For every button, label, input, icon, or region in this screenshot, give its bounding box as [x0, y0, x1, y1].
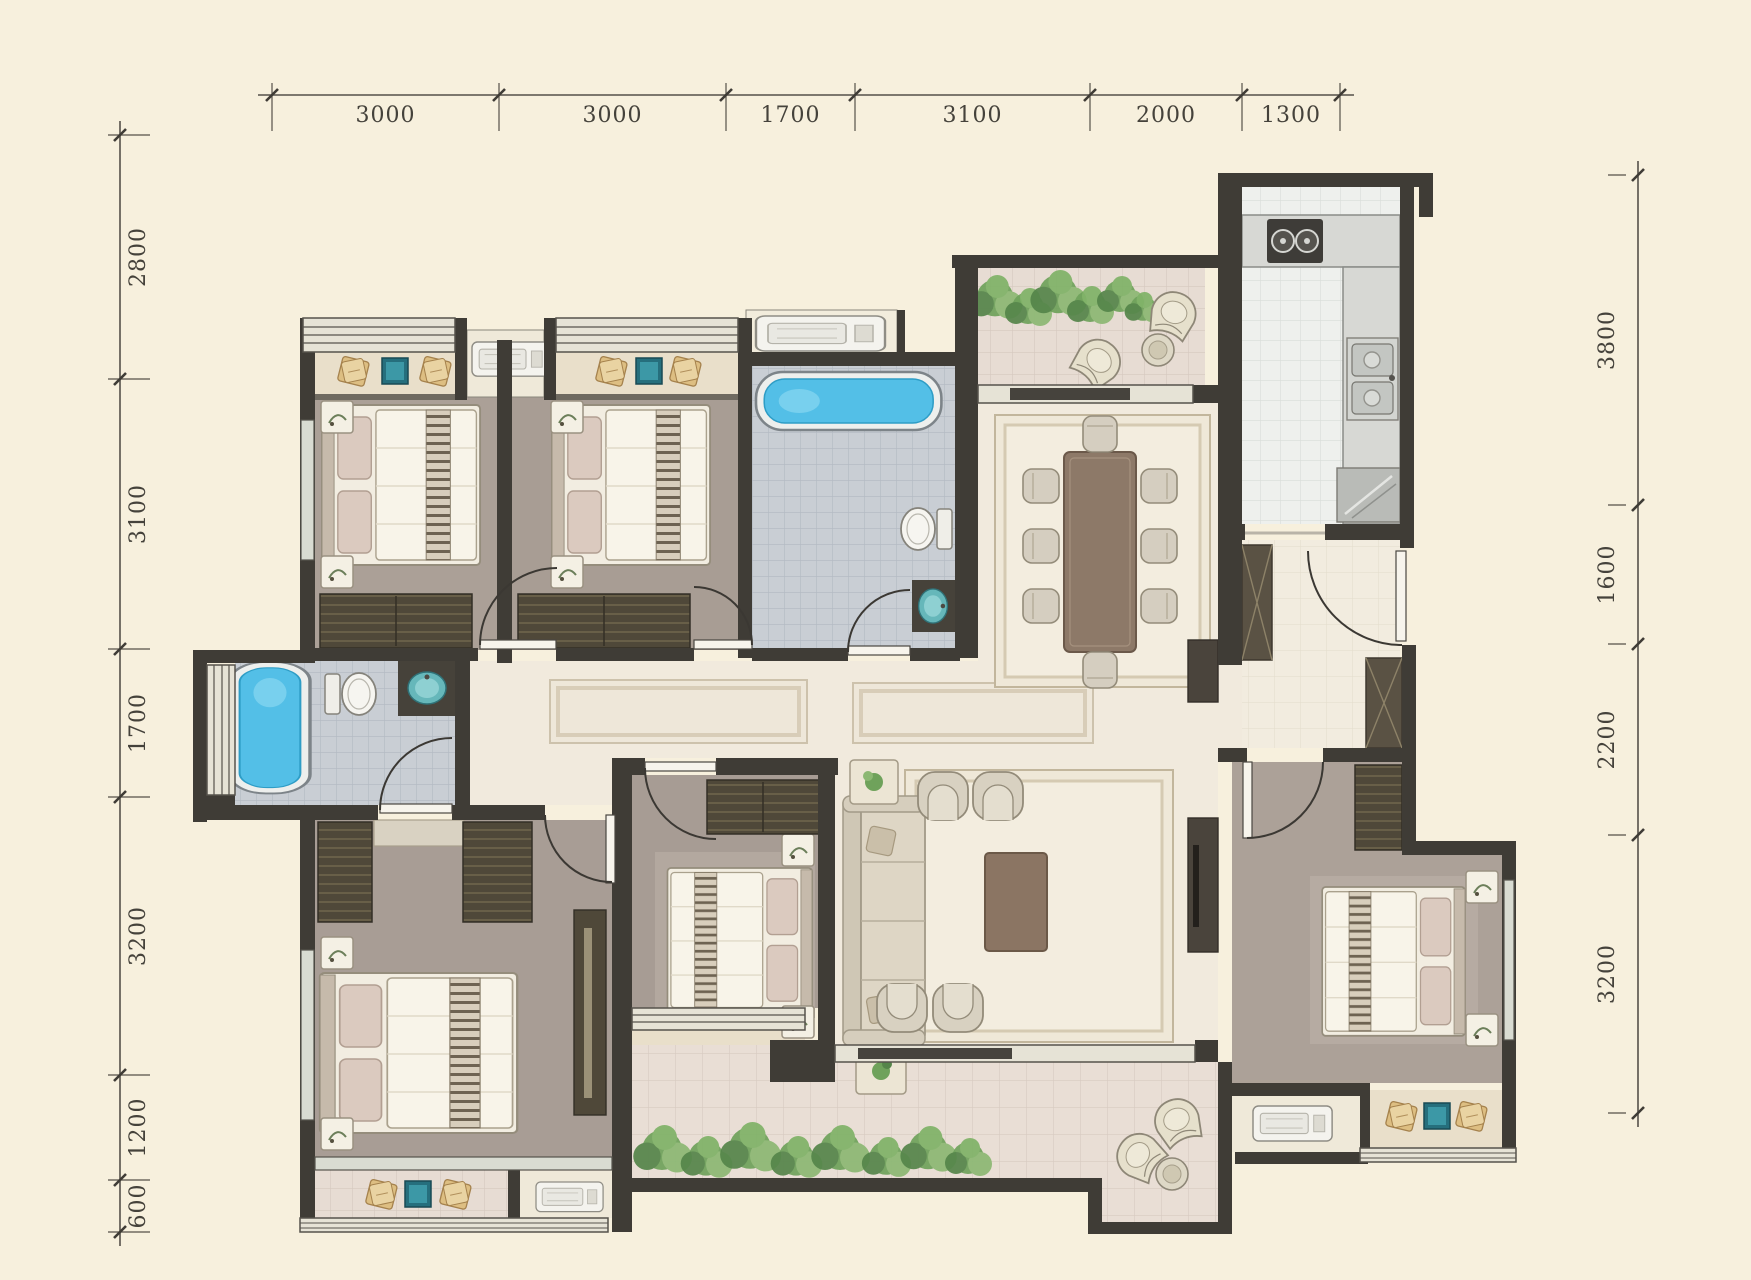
ac-unit — [536, 1182, 603, 1212]
bed — [668, 868, 813, 1012]
dimension-label: 3000 — [583, 103, 643, 128]
bay-plant-box — [1424, 1103, 1450, 1129]
wardrobe — [318, 822, 372, 922]
dimension-label: 1200 — [126, 1098, 151, 1158]
dimension-line: 300030001700310020001300 — [258, 83, 1354, 131]
sliding-door — [835, 1045, 1195, 1062]
entry-mat — [374, 820, 464, 846]
bay-plant-box — [382, 358, 408, 384]
dimension-label: 3200 — [126, 906, 151, 966]
dining-chair — [1141, 589, 1177, 623]
shoe-cabinet — [1366, 658, 1402, 748]
nightstand — [321, 1118, 353, 1150]
dimension-label: 1300 — [1261, 103, 1321, 128]
wardrobe — [1355, 765, 1402, 850]
window-sill — [315, 1157, 612, 1170]
window — [207, 665, 235, 795]
dining-table — [1064, 452, 1136, 652]
dining-chair — [1141, 469, 1177, 503]
side-table — [850, 760, 898, 804]
toilet — [901, 508, 952, 550]
cabinet — [1242, 545, 1272, 660]
window — [301, 950, 314, 1120]
dimension-label: 2800 — [126, 227, 151, 287]
dimension-label: 3200 — [1595, 944, 1620, 1004]
refrigerator — [1337, 468, 1400, 522]
corridor-rug — [550, 680, 807, 743]
window — [632, 1008, 805, 1030]
dimension-label: 600 — [126, 1184, 151, 1229]
window — [300, 1218, 608, 1232]
coffee-table — [985, 853, 1047, 951]
bathtub — [230, 662, 310, 793]
bathtub — [756, 372, 941, 430]
nightstand — [1466, 871, 1498, 903]
dimension-label: 3800 — [1595, 310, 1620, 370]
armchair — [973, 772, 1023, 820]
window — [556, 318, 738, 352]
sliding-window — [978, 385, 1193, 403]
stove — [1267, 219, 1323, 263]
bay-plant-box — [405, 1181, 431, 1207]
tv — [1193, 845, 1199, 927]
window — [301, 420, 314, 560]
dimension-label: 3100 — [126, 484, 151, 544]
floor-plan: 3000300017003100200013002800310017003200… — [0, 0, 1751, 1280]
sink — [408, 672, 446, 704]
nightstand — [321, 401, 353, 433]
window — [1360, 1148, 1516, 1162]
bay-plant-box — [636, 358, 662, 384]
dining-chair — [1083, 416, 1117, 452]
dimension-label: 1600 — [1595, 545, 1620, 605]
dimension-line: 3800160022003200 — [1595, 161, 1644, 1127]
toilet — [325, 673, 376, 715]
floor-plan-page: 3000300017003100200013002800310017003200… — [0, 0, 1751, 1280]
dimension-label: 3100 — [943, 103, 1003, 128]
dimension-label: 2000 — [1136, 103, 1196, 128]
nightstand — [551, 401, 583, 433]
nightstand — [321, 937, 353, 969]
dimension-label: 1700 — [761, 103, 821, 128]
armchair — [877, 984, 927, 1032]
window — [1504, 880, 1514, 1040]
nightstand — [782, 834, 814, 866]
nightstand — [1466, 1014, 1498, 1046]
window — [303, 318, 455, 352]
nightstand — [551, 556, 583, 588]
side-table — [1156, 1158, 1188, 1190]
ac-unit — [1253, 1106, 1332, 1141]
dining-chair — [1083, 652, 1117, 688]
dining-chair — [1141, 529, 1177, 563]
wardrobe — [463, 822, 532, 922]
kitchen-sink — [1347, 338, 1398, 420]
armchair — [933, 984, 983, 1032]
nightstand — [321, 556, 353, 588]
bed — [1322, 887, 1465, 1036]
dining-chair — [1023, 469, 1059, 503]
dimension-label: 3000 — [356, 103, 416, 128]
desk — [574, 910, 606, 1115]
ac-unit — [756, 316, 885, 351]
side-table — [1142, 334, 1174, 366]
corridor-rug — [853, 683, 1093, 743]
dimension-label: 1700 — [126, 693, 151, 753]
dining-chair — [1023, 589, 1059, 623]
sink — [919, 589, 948, 623]
bed — [320, 973, 517, 1133]
dining-chair — [1023, 529, 1059, 563]
dimension-line: 28003100170032001200600 — [108, 121, 151, 1246]
armchair — [918, 772, 968, 820]
dimension-label: 2200 — [1595, 710, 1620, 770]
